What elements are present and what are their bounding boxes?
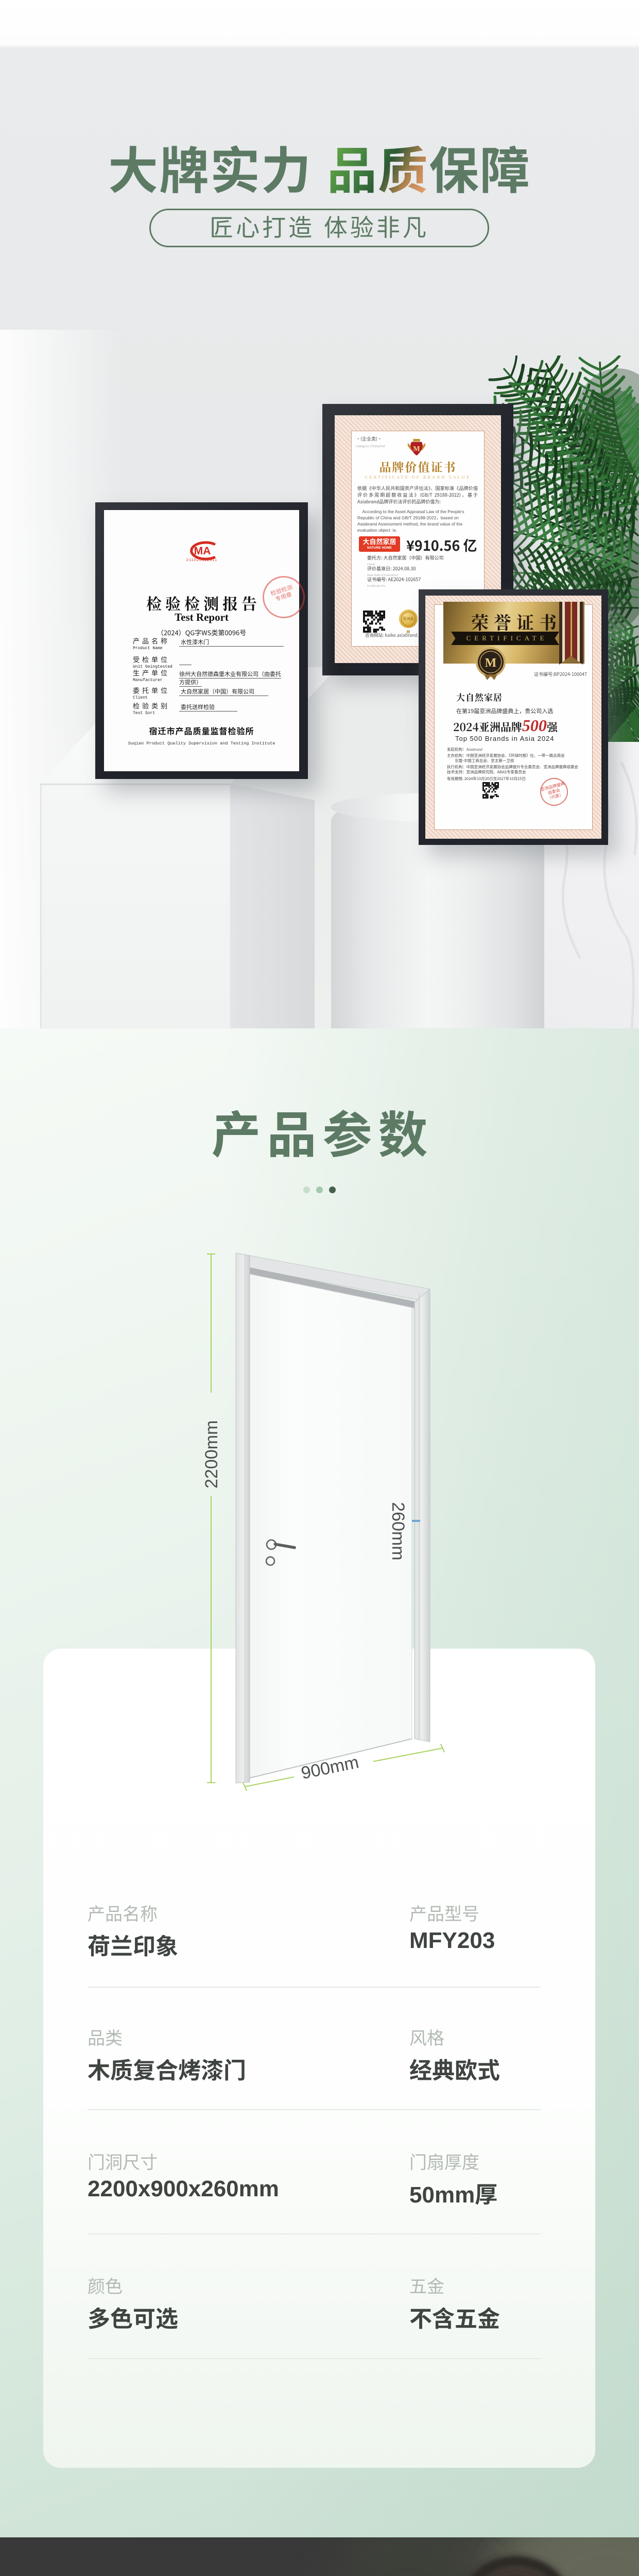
svg-text:260mm: 260mm xyxy=(388,1502,408,1560)
svg-text:M: M xyxy=(413,445,420,453)
svg-text:MA: MA xyxy=(194,545,211,557)
svg-text:M: M xyxy=(485,656,497,670)
svg-text:211020112311: 211020112311 xyxy=(186,557,217,562)
svg-text:2200mm: 2200mm xyxy=(202,1420,221,1488)
